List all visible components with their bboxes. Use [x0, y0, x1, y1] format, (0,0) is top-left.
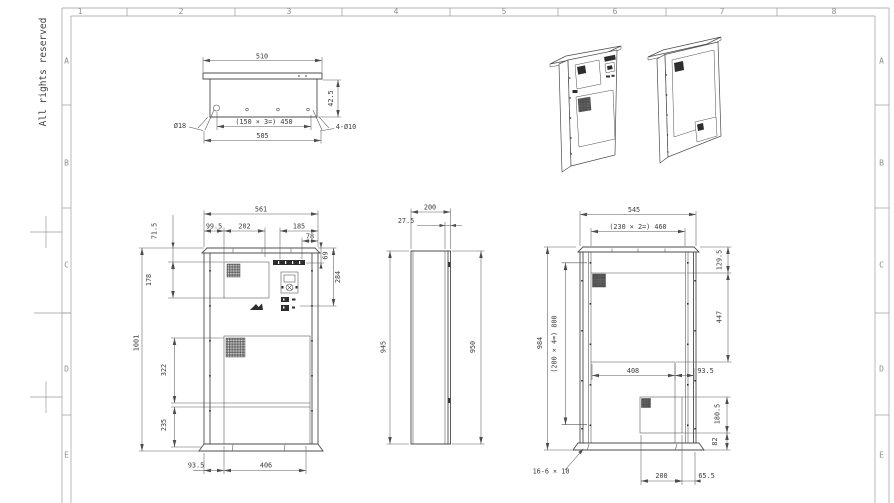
- dim-door-height: 178: [145, 274, 153, 286]
- zone-col-6: 6: [613, 7, 618, 16]
- zone-col-2: 2: [179, 7, 184, 16]
- dim-top-offset: 71.5: [151, 223, 159, 239]
- dim-door-thickness: 27.5: [398, 217, 414, 225]
- dim-bottom-door: 406: [260, 462, 272, 470]
- centering-mark: [30, 381, 62, 413]
- vent-grille: [578, 97, 591, 112]
- zone-col-7: 7: [720, 7, 725, 16]
- dim-opening-width: 408: [627, 367, 639, 375]
- back-view: 545 (230 × 2=) 460 129.5 447 984 (200 × …: [533, 206, 732, 485]
- top-view-dimensions: 510 42.5 (150 × 3=) 450 505 Ø18 4-Ø10: [174, 53, 356, 144]
- brand-logo-mark: [250, 304, 263, 311]
- dim-bottom-width: 200: [655, 472, 667, 480]
- display-screen: [284, 275, 295, 282]
- dim-panel-height: 284: [334, 271, 342, 283]
- dim-lower-height: 235: [160, 419, 168, 431]
- vent-grid: [226, 338, 245, 357]
- zone-row-a-left: A: [64, 57, 69, 66]
- label-mounting-slots: 16-6 × 10: [533, 468, 570, 476]
- dim-bottom-left: 93.5: [188, 462, 204, 470]
- label-corner-hole: Ø18: [174, 122, 186, 130]
- dim-panel-bottom: 82: [711, 437, 719, 445]
- zone-col-4: 4: [394, 7, 399, 16]
- dim-hole-pitch-v: (200 × 4=) 800: [551, 315, 559, 372]
- zone-row-b-right: B: [879, 159, 884, 168]
- dim-front-height: 1001: [133, 335, 141, 351]
- dim-height-door: 950: [469, 341, 477, 353]
- zone-row-d-left: D: [64, 365, 69, 374]
- dim-hole-pitch-h: (230 × 2=) 460: [609, 223, 666, 231]
- dim-seg-small: 78: [306, 233, 314, 241]
- zone-row-e-left: E: [64, 451, 69, 460]
- dim-opening-height: 447: [716, 311, 724, 323]
- dim-top-width: 510: [256, 53, 268, 61]
- dim-bottom-right: 65.5: [698, 472, 714, 480]
- front-view: 561 99.5 202 185 78 69 284 71.5 178 1001…: [133, 206, 343, 475]
- zone-col-3: 3: [287, 7, 292, 16]
- dim-seg-panel: 185: [293, 223, 305, 231]
- vent-grid: [227, 264, 240, 277]
- zone-col-8: 8: [832, 7, 837, 16]
- iso-front-view: [550, 46, 621, 172]
- zone-col-5: 5: [502, 7, 507, 16]
- cad-drawing-canvas: 1 2 3 4 5 6 7 8 A B C D E A B C D E All …: [0, 0, 894, 503]
- dim-mid-height: 322: [160, 364, 168, 376]
- dim-opening-right: 93.5: [697, 367, 713, 375]
- zone-row-d-right: D: [879, 365, 884, 374]
- sheet-frame: 1 2 3 4 5 6 7 8 A B C D E A B C D E All …: [30, 7, 889, 503]
- dim-seg-left: 99.5: [206, 223, 222, 231]
- centering-mark: [30, 216, 62, 248]
- dim-depth: 200: [424, 204, 436, 212]
- zone-row-c-right: C: [879, 261, 884, 270]
- side-view: 200 27.5 945 950: [380, 204, 485, 445]
- dim-base-width: 505: [256, 132, 268, 140]
- zone-col-1: 1: [78, 7, 83, 16]
- drawing-sheet: 1 2 3 4 5 6 7 8 A B C D E A B C D E All …: [0, 0, 894, 503]
- dim-louver-height: 69: [322, 251, 330, 259]
- dim-flange-height: 42.5: [327, 90, 335, 106]
- brand-logo-mark: [573, 90, 578, 93]
- dim-seg-door: 202: [238, 223, 250, 231]
- zone-row-e-right: E: [879, 451, 884, 460]
- iso-back-view: [648, 37, 721, 163]
- dim-back-height: 984: [536, 337, 544, 349]
- side-view-dimensions: 200 27.5 945 950: [380, 204, 485, 445]
- dim-hole-pitch: (150 × 3=) 450: [235, 118, 292, 126]
- top-view: 510 42.5 (150 × 3=) 450 505 Ø18 4-Ø10: [174, 53, 356, 144]
- vent-grid: [593, 274, 606, 287]
- copyright-notice: All rights reserved: [38, 18, 49, 127]
- dim-panel-height: 180.5: [714, 404, 722, 424]
- vent-grid: [642, 399, 651, 408]
- control-panel: [273, 260, 305, 311]
- zone-row-c-left: C: [64, 261, 69, 270]
- dim-back-top-offset: 129.5: [716, 250, 724, 270]
- zone-row-b-left: B: [64, 159, 69, 168]
- label-mount-holes: 4-Ø10: [336, 123, 356, 131]
- dim-height-body: 945: [380, 341, 388, 353]
- dim-front-width: 561: [255, 206, 267, 214]
- zone-row-a-right: A: [879, 57, 884, 66]
- dim-back-width: 545: [628, 206, 640, 214]
